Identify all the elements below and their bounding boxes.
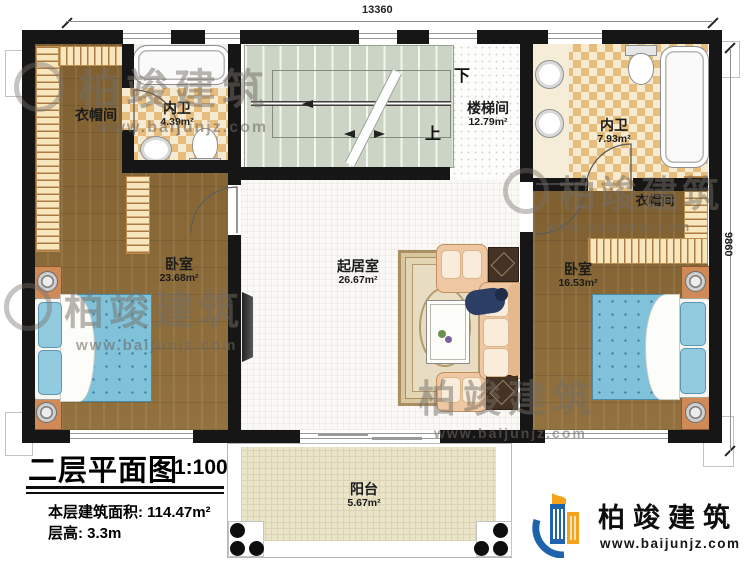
- wall-bath-left-west-upper: [122, 44, 134, 88]
- sofa-cushion: [483, 348, 509, 377]
- wall-interior-v3-lower: [520, 232, 533, 430]
- room-label-bath-right: 内卫 7.93m²: [597, 117, 630, 145]
- armchair-cushion: [462, 250, 482, 279]
- wall-interior-v3-upper: [520, 44, 533, 182]
- wall-bath-right-south-left: [533, 178, 588, 191]
- wall-left: [22, 30, 35, 443]
- stair-up-label: 上: [425, 120, 441, 144]
- sink: [140, 136, 172, 163]
- window: [70, 430, 193, 443]
- brand-website: www.baijunjz.com: [600, 536, 741, 551]
- window: [205, 30, 240, 43]
- window: [548, 30, 602, 43]
- balcony-column-dot: [230, 541, 245, 556]
- pillow: [38, 350, 62, 395]
- bedside-lamp: [36, 402, 57, 423]
- balcony-column-dot: [493, 541, 508, 556]
- wall-bottom: [22, 430, 70, 443]
- bedside-lamp: [685, 402, 706, 423]
- closet-rack: [588, 238, 708, 264]
- wall-top: [477, 30, 548, 44]
- wall-interior-v1-lower: [228, 235, 241, 430]
- room-label-bedroom-right: 卧室 16.53m²: [558, 261, 597, 289]
- wall-bath-right-south-right: [633, 178, 708, 191]
- brand-name: 柏竣建筑: [598, 496, 738, 535]
- room-label-living-room: 起居室 26.67m²: [337, 258, 379, 286]
- toilet: [192, 128, 218, 162]
- room-label-balcony: 阳台 5.67m²: [347, 481, 380, 509]
- balcony-column-dot: [474, 541, 489, 556]
- title-underline: [26, 486, 224, 489]
- room-label-cloakroom-left: 衣帽间: [75, 107, 117, 123]
- wall-bottom: [668, 430, 722, 443]
- window: [359, 30, 397, 43]
- stair-down-label: 下: [454, 62, 470, 86]
- closet-rack: [58, 46, 130, 66]
- wall-top: [240, 30, 359, 44]
- room-label-bath-left: 内卫 4.39m²: [160, 100, 193, 128]
- dim-tick-top-left: [61, 17, 72, 28]
- sink: [535, 60, 564, 89]
- room-label-cloakroom-right: 衣帽间: [635, 194, 674, 209]
- side-table: [488, 247, 519, 282]
- wall-stairwell-south: [228, 167, 450, 180]
- dimension-right-value: 9860: [722, 232, 734, 256]
- pillow: [680, 302, 706, 346]
- bedside-lamp: [685, 271, 706, 292]
- person-head: [495, 288, 508, 301]
- sliding-door-panel: [318, 433, 368, 436]
- plan-scale: 1:100: [174, 456, 228, 480]
- brand-logo: 柏竣建筑 www.baijunjz.com: [528, 488, 744, 562]
- room-label-stairwell: 楼梯间 12.79m²: [467, 100, 509, 128]
- wall-bottom: [440, 430, 545, 443]
- armchair-cushion: [441, 250, 461, 279]
- wall-bath-left-west-lower: [122, 130, 134, 173]
- plan-title: 二层平面图: [28, 447, 178, 489]
- sink: [535, 109, 564, 138]
- floor-area-line: 本层建筑面积: 114.47m²: [48, 501, 211, 522]
- brand-logo-icon: [530, 490, 592, 558]
- wall-top: [171, 30, 205, 44]
- coffee-table: [426, 300, 470, 364]
- closet-rack: [126, 176, 150, 254]
- bathtub: [133, 45, 230, 85]
- pillow: [38, 302, 62, 348]
- wall-top: [397, 30, 429, 44]
- balcony-column-dot: [249, 541, 264, 556]
- armchair-cushion: [462, 377, 482, 403]
- bathtub: [660, 46, 709, 168]
- dimension-line-top: [66, 21, 712, 22]
- side-table: [486, 375, 518, 410]
- window: [545, 430, 668, 443]
- toilet: [628, 53, 654, 85]
- balcony-column-dot: [230, 523, 245, 538]
- window: [123, 30, 171, 43]
- balcony-column-dot: [493, 523, 508, 538]
- floor-height-line: 层高: 3.3m: [48, 522, 121, 543]
- pillow: [680, 348, 706, 394]
- dimension-top-value: 13360: [362, 4, 393, 16]
- wall-bath-left-south: [122, 160, 241, 173]
- sofa-cushion: [483, 318, 509, 347]
- floor-plan-canvas: 13360 9860: [0, 0, 750, 568]
- wall-top: [22, 30, 123, 44]
- closet-rack: [36, 46, 60, 252]
- sliding-door-panel: [372, 437, 422, 440]
- dim-tick-top-right: [707, 17, 718, 28]
- wall-bottom: [193, 430, 300, 443]
- armchair-cushion: [441, 377, 461, 403]
- title-underline: [26, 492, 224, 494]
- window: [429, 30, 477, 43]
- wall-top: [602, 30, 722, 44]
- room-label-bedroom-left: 卧室 23.68m²: [159, 256, 198, 284]
- bed-sheet-fold: [645, 294, 680, 400]
- table-flower: [445, 336, 452, 343]
- wall-right: [709, 30, 722, 443]
- tv: [242, 292, 253, 362]
- bedside-lamp: [37, 271, 58, 292]
- stair-handrail: [251, 101, 451, 106]
